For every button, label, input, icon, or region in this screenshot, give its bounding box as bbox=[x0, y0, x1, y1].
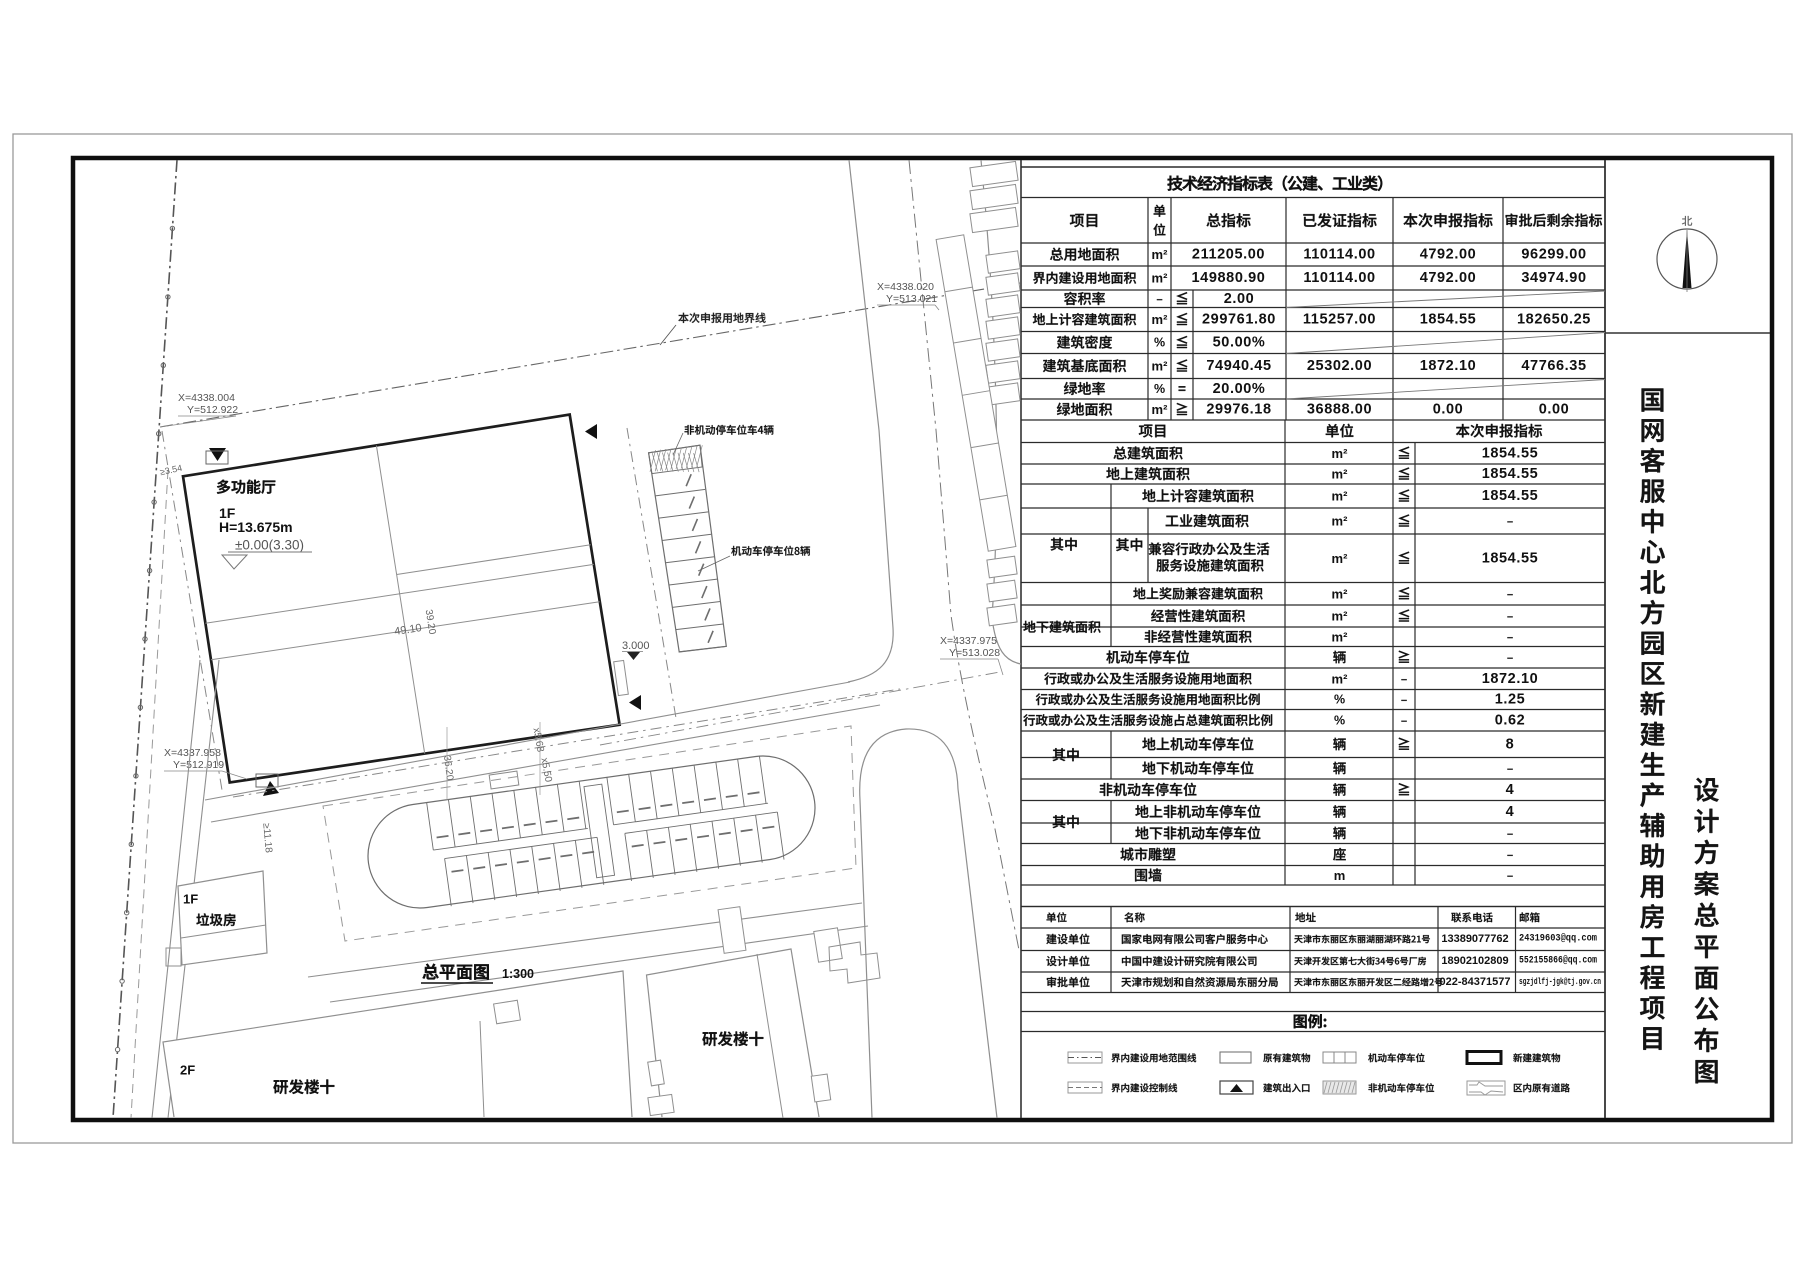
svg-text:50.00%: 50.00% bbox=[1213, 335, 1266, 351]
svg-text:m²: m² bbox=[1332, 586, 1349, 601]
svg-text:H=13.675m: H=13.675m bbox=[219, 519, 293, 535]
svg-text:74940.45: 74940.45 bbox=[1206, 358, 1271, 374]
svg-text:m²: m² bbox=[1152, 359, 1169, 374]
svg-text:149880.90: 149880.90 bbox=[1192, 270, 1266, 286]
svg-text:1854.55: 1854.55 bbox=[1482, 488, 1539, 504]
svg-text:m²: m² bbox=[1332, 489, 1349, 504]
svg-text:X=4338.020: X=4338.020 bbox=[877, 281, 934, 293]
svg-text:±0.00(3.30): ±0.00(3.30) bbox=[235, 538, 304, 553]
svg-text:1854.55: 1854.55 bbox=[1482, 466, 1539, 482]
svg-text:29976.18: 29976.18 bbox=[1206, 402, 1271, 418]
svg-text:X=4337.975: X=4337.975 bbox=[940, 635, 997, 647]
svg-text:1854.55: 1854.55 bbox=[1482, 445, 1539, 461]
svg-text:0.00: 0.00 bbox=[1433, 402, 1464, 418]
svg-text:1F: 1F bbox=[183, 892, 198, 907]
svg-text:25302.00: 25302.00 bbox=[1307, 358, 1372, 374]
svg-text:47766.35: 47766.35 bbox=[1521, 358, 1586, 374]
svg-text:36.20: 36.20 bbox=[441, 755, 455, 782]
svg-text:≥11.18: ≥11.18 bbox=[260, 823, 274, 854]
svg-text:13389077762: 13389077762 bbox=[1441, 933, 1508, 945]
svg-text:m²: m² bbox=[1152, 312, 1169, 327]
svg-text:36888.00: 36888.00 bbox=[1307, 402, 1372, 418]
svg-text:Y=513.021: Y=513.021 bbox=[886, 293, 937, 305]
svg-text:110114.00: 110114.00 bbox=[1303, 247, 1375, 263]
svg-text:Y=512.922: Y=512.922 bbox=[187, 404, 238, 416]
svg-text:m²: m² bbox=[1152, 271, 1169, 286]
svg-text:≥3.54: ≥3.54 bbox=[159, 463, 183, 477]
svg-text:X=4337.958: X=4337.958 bbox=[164, 747, 221, 759]
svg-text:m²: m² bbox=[1332, 514, 1349, 529]
svg-text:1854.55: 1854.55 bbox=[1482, 550, 1539, 566]
svg-text:m²: m² bbox=[1332, 446, 1349, 461]
svg-text:4792.00: 4792.00 bbox=[1420, 270, 1477, 286]
svg-text:2F: 2F bbox=[180, 1063, 195, 1078]
svg-text:1854.55: 1854.55 bbox=[1420, 312, 1477, 328]
svg-text:34974.90: 34974.90 bbox=[1521, 270, 1586, 286]
svg-text:Y=512.919: Y=512.919 bbox=[173, 759, 224, 771]
svg-text:x5.50: x5.50 bbox=[538, 757, 553, 783]
svg-text:m²: m² bbox=[1332, 609, 1349, 624]
svg-text:96299.00: 96299.00 bbox=[1521, 247, 1586, 263]
svg-text:211205.00: 211205.00 bbox=[1192, 247, 1265, 263]
svg-text:1.25: 1.25 bbox=[1495, 692, 1526, 708]
svg-text:18902102809: 18902102809 bbox=[1441, 955, 1508, 967]
svg-text:m²: m² bbox=[1332, 551, 1349, 566]
svg-text:299761.80: 299761.80 bbox=[1202, 312, 1276, 328]
svg-text:182650.25: 182650.25 bbox=[1517, 312, 1591, 328]
svg-text:Y=513.028: Y=513.028 bbox=[949, 647, 1000, 659]
svg-text:%: % bbox=[1154, 382, 1165, 396]
svg-text:m²: m² bbox=[1332, 467, 1349, 482]
svg-text:552155866@qq.com: 552155866@qq.com bbox=[1519, 955, 1597, 967]
svg-text:m: m bbox=[1334, 868, 1346, 883]
svg-text:%: % bbox=[1334, 713, 1345, 727]
svg-text:20.00%: 20.00% bbox=[1213, 381, 1266, 397]
svg-text:4792.00: 4792.00 bbox=[1420, 247, 1477, 263]
svg-text:4: 4 bbox=[1506, 782, 1515, 798]
svg-text:022-84371577: 022-84371577 bbox=[1440, 976, 1511, 988]
svg-text:110114.00: 110114.00 bbox=[1303, 270, 1375, 286]
svg-text:8: 8 bbox=[1506, 736, 1515, 752]
svg-text:3.000: 3.000 bbox=[622, 640, 650, 652]
svg-text:m²: m² bbox=[1152, 247, 1169, 262]
svg-text:m²: m² bbox=[1332, 629, 1349, 644]
svg-text:%: % bbox=[1154, 336, 1165, 350]
svg-text:1872.10: 1872.10 bbox=[1420, 358, 1477, 374]
svg-text:0.62: 0.62 bbox=[1495, 712, 1526, 728]
svg-text:m²: m² bbox=[1152, 402, 1169, 417]
svg-text:m²: m² bbox=[1332, 671, 1349, 686]
svg-text:24319603@qq.com: 24319603@qq.com bbox=[1519, 933, 1597, 945]
svg-text:4: 4 bbox=[1506, 804, 1515, 820]
svg-text:115257.00: 115257.00 bbox=[1303, 312, 1376, 328]
svg-text:1:300: 1:300 bbox=[502, 967, 534, 981]
svg-text:0.00: 0.00 bbox=[1539, 402, 1570, 418]
svg-text:2.00: 2.00 bbox=[1224, 291, 1255, 307]
svg-text:%: % bbox=[1334, 693, 1345, 707]
svg-text:sgzjdlfj-jgk@tj.gov.cn: sgzjdlfj-jgk@tj.gov.cn bbox=[1519, 977, 1601, 987]
svg-text:1872.10: 1872.10 bbox=[1482, 671, 1539, 687]
svg-text:X=4338.004: X=4338.004 bbox=[178, 392, 235, 404]
